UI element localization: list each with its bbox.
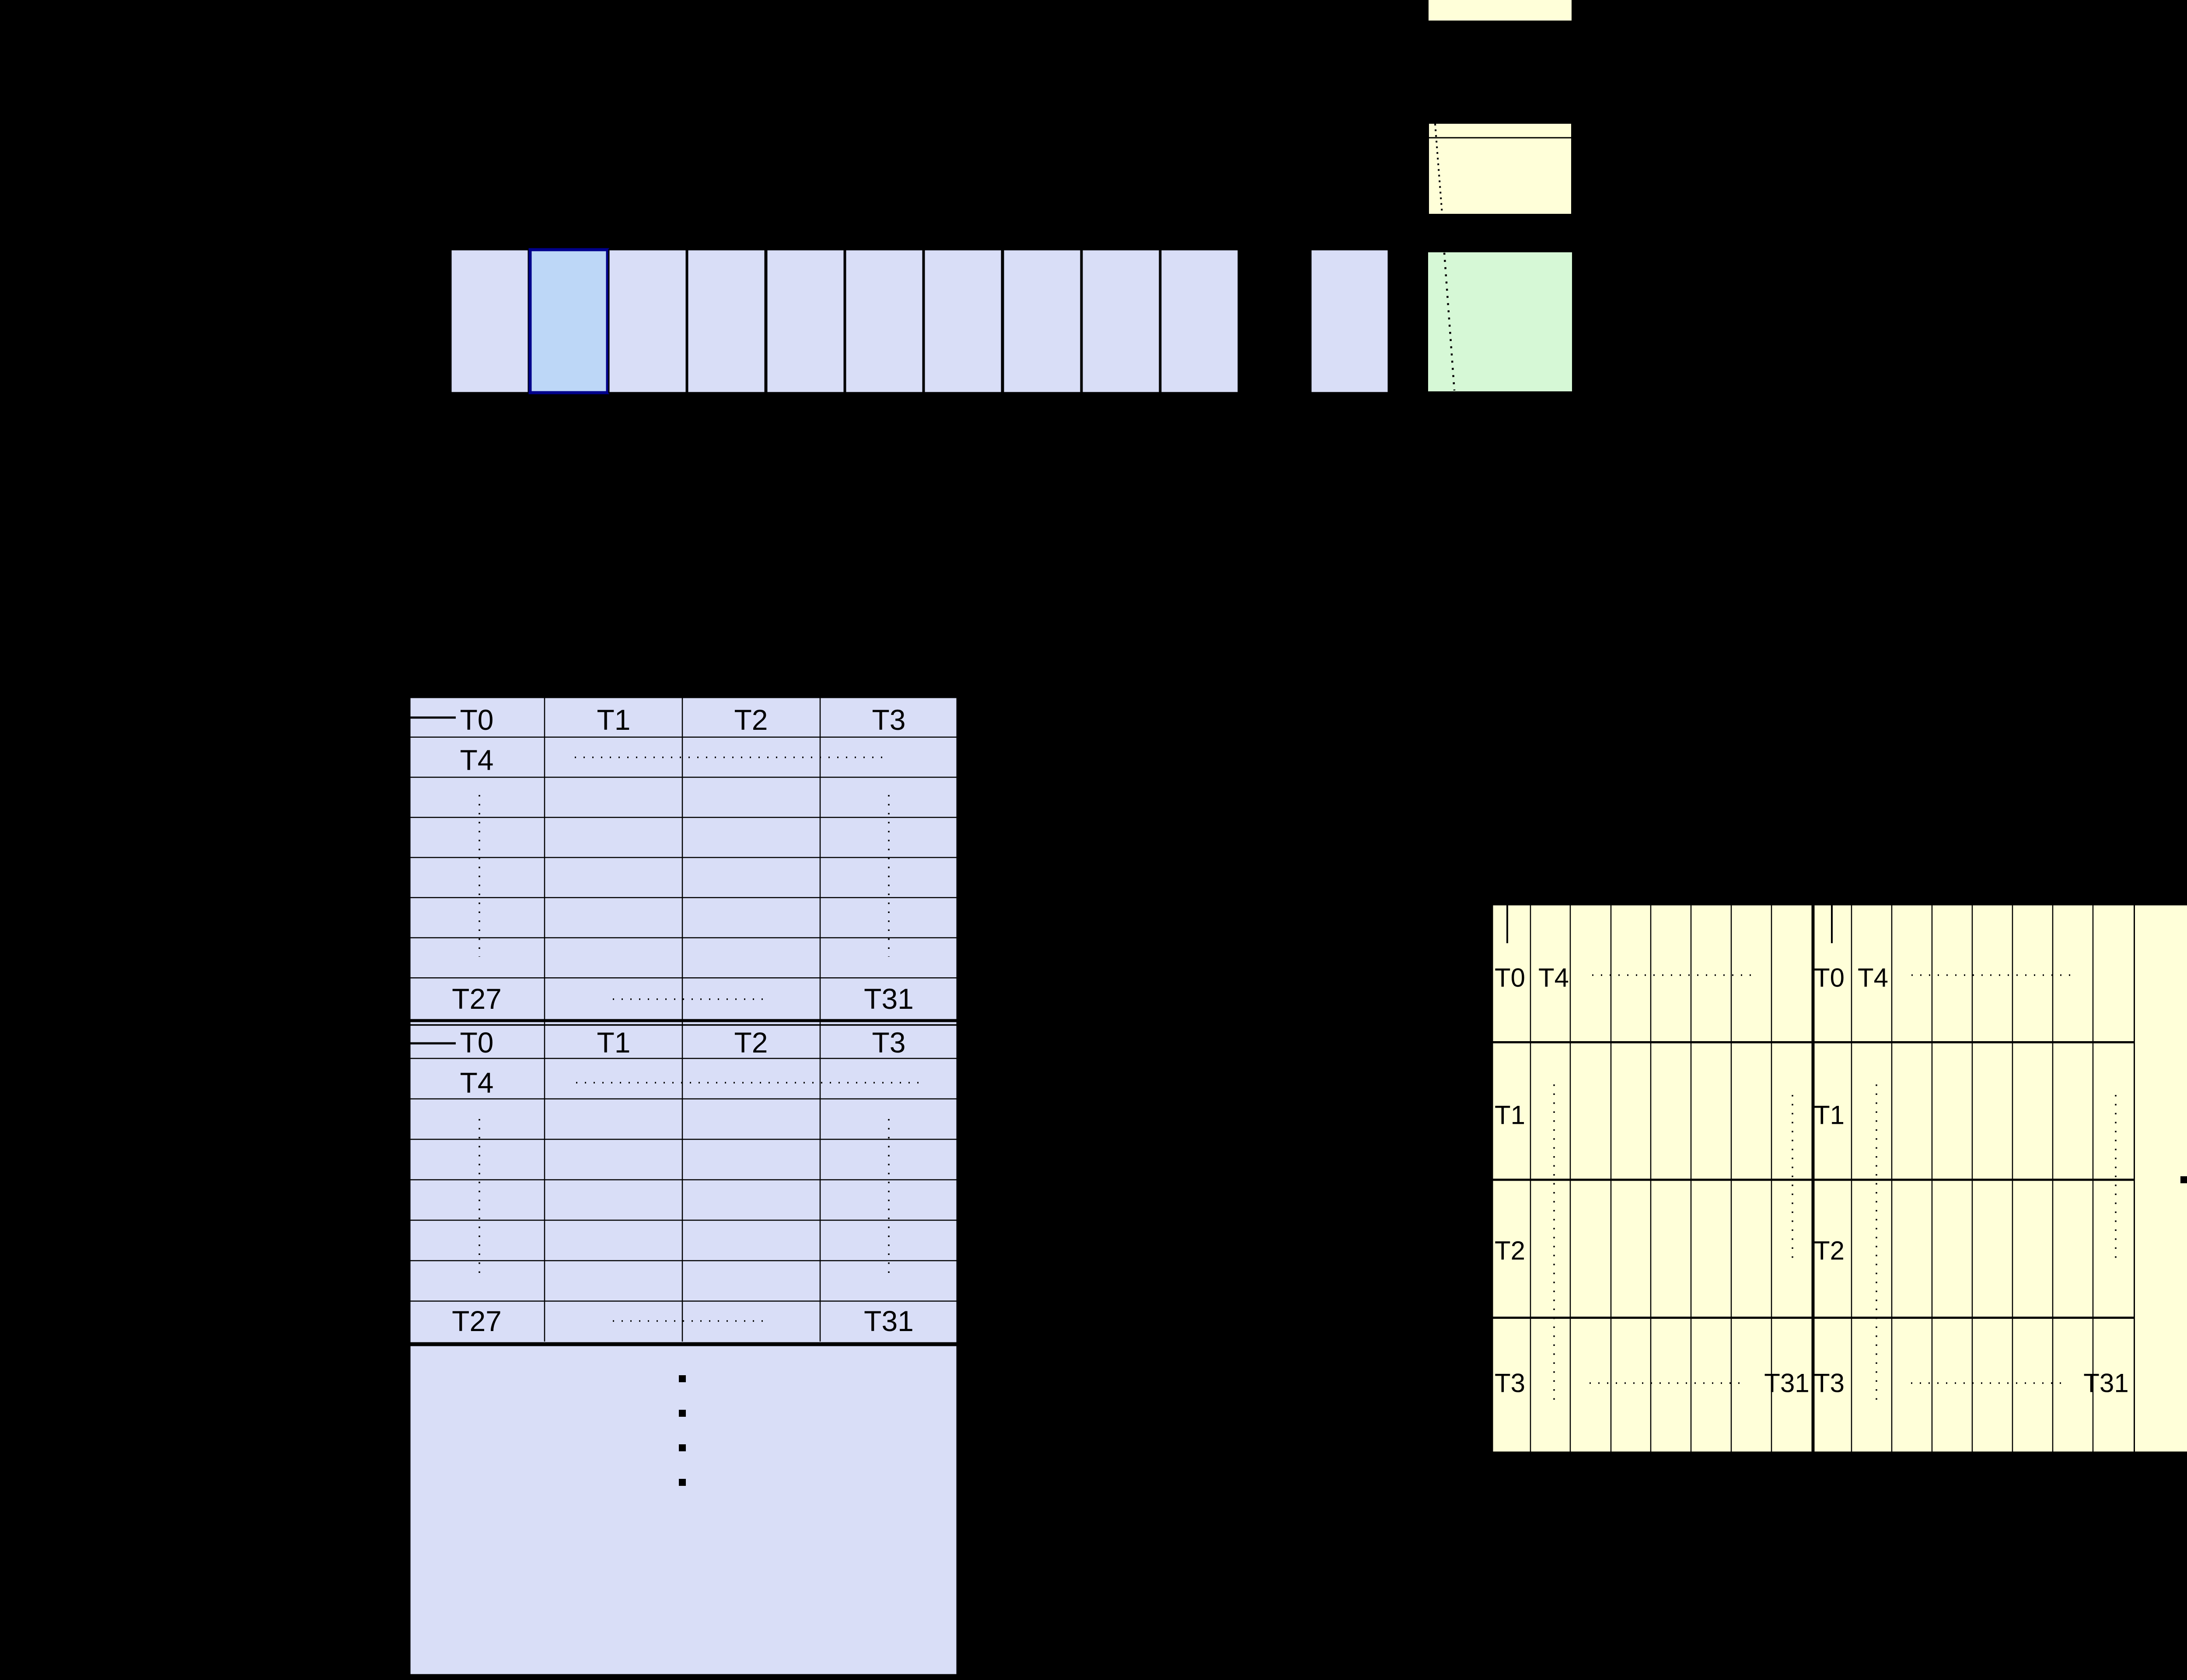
svg-text:T2: T2 — [1814, 1236, 1845, 1265]
svg-text:T31: T31 — [2083, 1369, 2128, 1398]
svg-text:T1: T1 — [1495, 1101, 1525, 1130]
svg-text:T0: T0 — [1814, 963, 1845, 993]
svg-text:T3: T3 — [872, 1026, 905, 1059]
svg-text:T0: T0 — [460, 704, 493, 736]
svg-text:T31: T31 — [1764, 1369, 1809, 1398]
svg-text:T3: T3 — [872, 704, 905, 736]
svg-text:T31: T31 — [864, 1305, 914, 1337]
svg-text:T4: T4 — [460, 744, 493, 776]
svg-text:T1: T1 — [1814, 1101, 1845, 1130]
svg-text:T0: T0 — [1495, 963, 1525, 993]
svg-text:T4: T4 — [460, 1067, 493, 1099]
svg-text:T3: T3 — [1814, 1369, 1845, 1398]
svg-text:T4: T4 — [1858, 963, 1888, 993]
svg-text:T31: T31 — [864, 983, 914, 1015]
svg-text:T27: T27 — [452, 1305, 502, 1337]
svg-text:T27: T27 — [452, 983, 502, 1015]
svg-text:T4: T4 — [1538, 963, 1569, 993]
svg-text:T2: T2 — [1495, 1236, 1525, 1265]
svg-text:T3: T3 — [1495, 1369, 1525, 1398]
svg-text:T1: T1 — [597, 1026, 630, 1059]
svg-text:T0: T0 — [460, 1026, 493, 1059]
svg-text:T2: T2 — [734, 704, 768, 736]
svg-text:T1: T1 — [597, 704, 630, 736]
svg-text:T2: T2 — [734, 1026, 768, 1059]
